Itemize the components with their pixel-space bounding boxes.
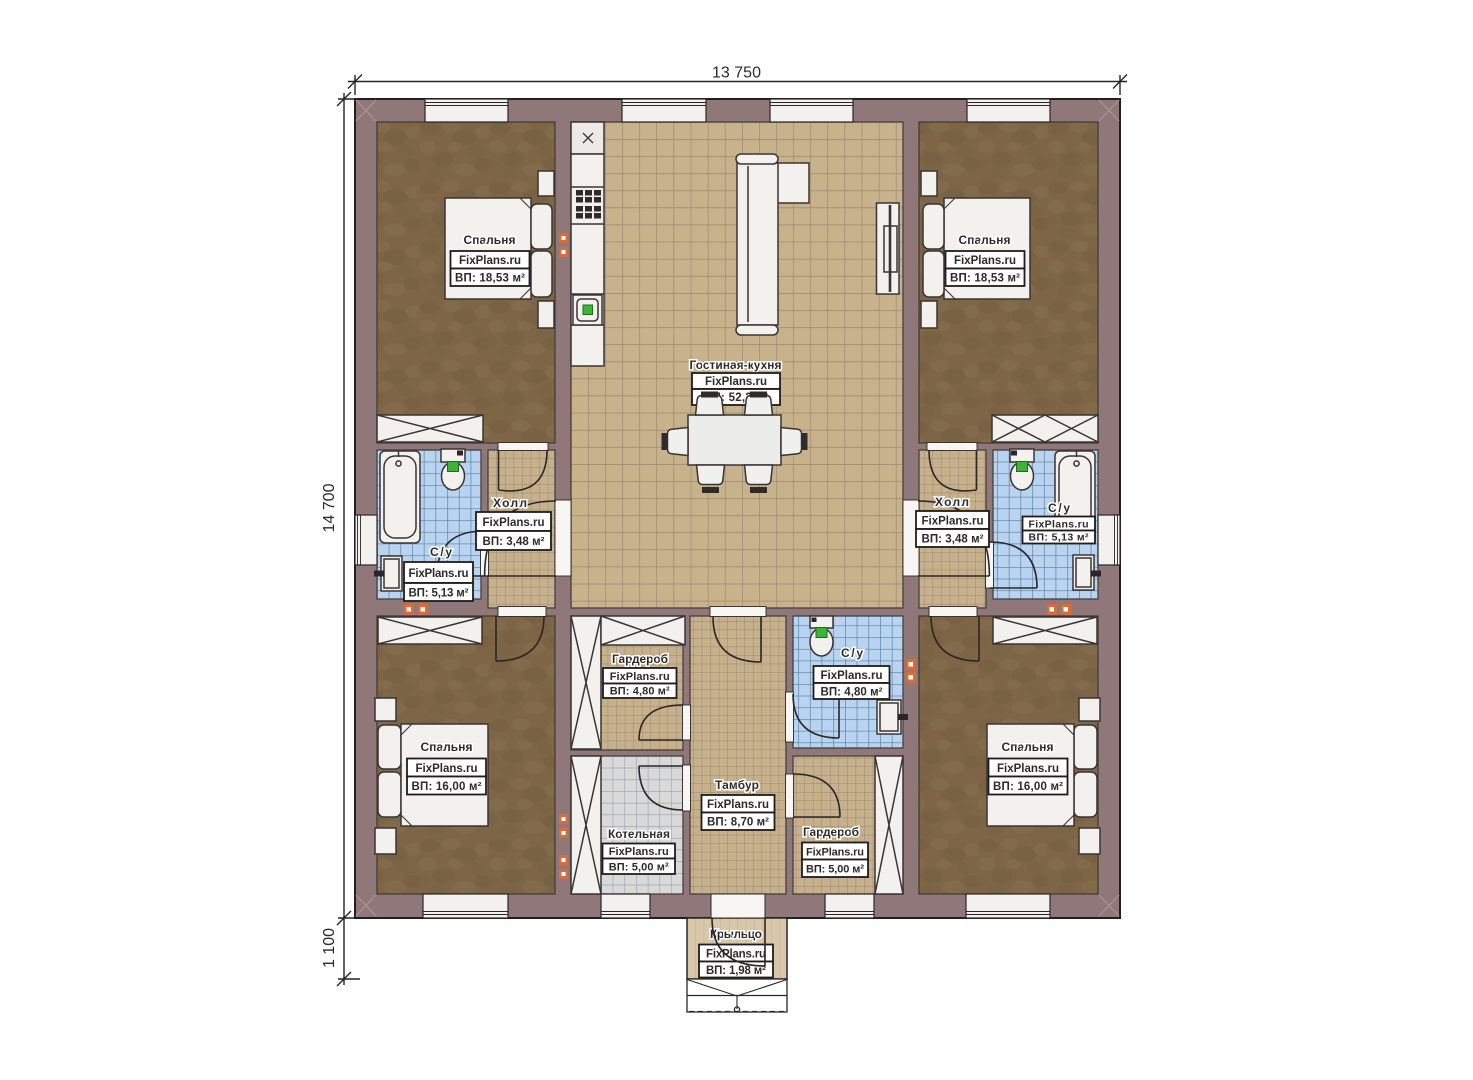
svg-text:Гардероб: Гардероб (803, 825, 859, 839)
svg-text:ВП: 18,53 м²: ВП: 18,53 м² (950, 273, 1020, 285)
svg-text:ВП: 8,70 м²: ВП: 8,70 м² (707, 817, 769, 829)
svg-text:ВП: 16,00 м²: ВП: 16,00 м² (993, 781, 1063, 793)
svg-text:FixPlans.ru: FixPlans.ru (997, 763, 1059, 775)
svg-text:Гардероб: Гардероб (612, 652, 668, 666)
svg-text:Спальня: Спальня (959, 233, 1011, 247)
svg-text:ВП: 5,00 м²: ВП: 5,00 м² (806, 864, 864, 876)
svg-text:Спальня: Спальня (1002, 740, 1054, 754)
svg-text:Холл: Холл (935, 495, 969, 509)
svg-text:С/у: С/у (841, 646, 863, 660)
svg-text:Крыльцо: Крыльцо (710, 927, 762, 941)
svg-text:С/у: С/у (1048, 501, 1070, 515)
svg-text:Спальня: Спальня (421, 740, 473, 754)
svg-text:FixPlans.ru: FixPlans.ru (416, 763, 478, 775)
svg-text:Спальня: Спальня (464, 233, 516, 247)
svg-text:FixPlans.ru: FixPlans.ru (706, 949, 766, 961)
svg-text:ВП: 4,80 м²: ВП: 4,80 м² (821, 687, 883, 699)
svg-text:14 700: 14 700 (321, 483, 338, 532)
svg-text:FixPlans.ru: FixPlans.ru (1029, 519, 1089, 531)
svg-text:FixPlans.ru: FixPlans.ru (609, 846, 669, 858)
svg-text:13 750: 13 750 (712, 65, 761, 82)
svg-text:1 100: 1 100 (321, 928, 338, 968)
svg-text:ВП: 3,48 м²: ВП: 3,48 м² (483, 536, 545, 548)
svg-text:ВП: 4,80 м²: ВП: 4,80 м² (610, 686, 670, 698)
svg-text:ВП: 1,98 м²: ВП: 1,98 м² (706, 965, 766, 977)
svg-text:FixPlans.ru: FixPlans.ru (705, 376, 767, 388)
svg-text:FixPlans.ru: FixPlans.ru (610, 671, 670, 683)
svg-text:С/у: С/у (430, 545, 452, 559)
svg-text:ВП: 3,48 м²: ВП: 3,48 м² (922, 534, 984, 546)
svg-text:FixPlans.ru: FixPlans.ru (483, 517, 545, 529)
svg-text:FixPlans.ru: FixPlans.ru (806, 847, 864, 859)
svg-text:Тамбур: Тамбур (715, 778, 759, 792)
svg-text:Гостиная-кухня: Гостиная-кухня (690, 358, 782, 372)
svg-text:FixPlans.ru: FixPlans.ru (922, 516, 984, 528)
svg-text:ВП: 5,13 м²: ВП: 5,13 м² (1029, 532, 1090, 544)
svg-text:ВП: 16,00 м²: ВП: 16,00 м² (412, 781, 482, 793)
svg-text:ВП: 5,13 м²: ВП: 5,13 м² (409, 588, 469, 600)
svg-text:FixPlans.ru: FixPlans.ru (954, 255, 1016, 267)
svg-text:ВП: 5,00 м²: ВП: 5,00 м² (609, 862, 669, 874)
svg-text:FixPlans.ru: FixPlans.ru (409, 568, 469, 580)
svg-text:ВП: 18,53 м²: ВП: 18,53 м² (455, 273, 525, 285)
svg-text:FixPlans.ru: FixPlans.ru (459, 255, 521, 267)
svg-text:FixPlans.ru: FixPlans.ru (707, 799, 769, 811)
svg-text:FixPlans.ru: FixPlans.ru (821, 670, 883, 682)
svg-text:Котельная: Котельная (608, 827, 670, 841)
svg-text:Холл: Холл (493, 496, 527, 510)
